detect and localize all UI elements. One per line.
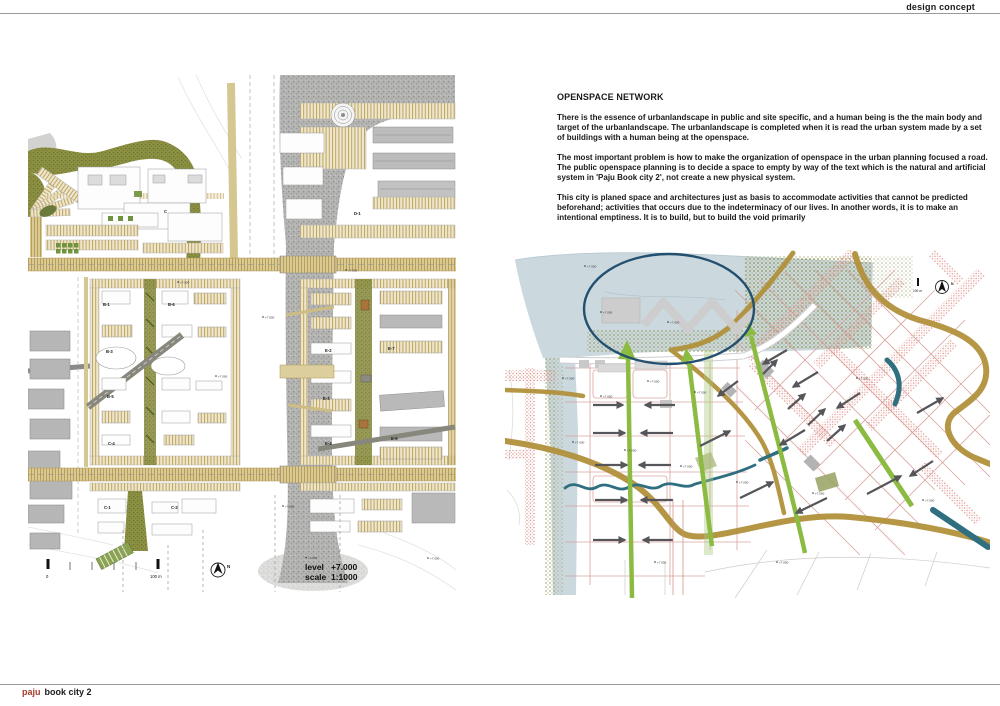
block-label: E-2 <box>325 348 332 353</box>
svg-text:+7.000: +7.000 <box>779 561 789 565</box>
svg-text:+7.000: +7.000 <box>815 492 825 496</box>
footer-rest: book city 2 <box>45 687 92 697</box>
top-rule <box>0 13 1000 14</box>
svg-text:+7.000: +7.000 <box>603 395 613 399</box>
diagram-contours <box>507 370 520 525</box>
north-label: N <box>951 282 954 286</box>
section-heading: OPENSPACE NETWORK <box>557 92 990 102</box>
svg-text:+7.000: +7.000 <box>859 377 869 381</box>
block-label: E-3 <box>323 396 330 401</box>
north-access-road <box>231 83 234 259</box>
north-arrow: N <box>211 563 230 578</box>
west-slab-buildings <box>28 277 90 549</box>
spot-elevation: +7.000 <box>430 557 440 561</box>
svg-text:+7.000: +7.000 <box>180 281 190 285</box>
lower-red-roads <box>673 500 683 595</box>
block-label: B-5 <box>107 394 114 399</box>
svg-text:+7.000: +7.000 <box>697 391 707 395</box>
block-label: C-1 <box>104 505 111 510</box>
svg-text:+7.000: +7.000 <box>218 375 228 379</box>
block-label: C-2 <box>171 505 178 510</box>
footer-title: pajubook city 2 <box>22 687 92 697</box>
svg-text:+7.000: +7.000 <box>670 321 680 325</box>
main-road-upper <box>28 256 456 273</box>
block-cluster-e-lower <box>300 483 455 532</box>
north-label: N <box>227 564 230 569</box>
openspace-diagram: N 100 m +7.000 +7.000 +7.000 +7.000 +7.0… <box>505 250 990 600</box>
block-cluster-b <box>88 279 240 465</box>
block-label: E-4 <box>325 441 332 446</box>
setback-lines <box>250 75 274 259</box>
svg-text:+7.000: +7.000 <box>285 505 295 509</box>
svg-text:+7.000: +7.000 <box>657 561 667 565</box>
block-label: C <box>164 209 167 214</box>
svg-text:+7.000: +7.000 <box>348 269 358 273</box>
svg-text:+7.000: +7.000 <box>575 441 585 445</box>
svg-text:+7.000: +7.000 <box>265 316 275 320</box>
scale-value: 1:1000 <box>331 572 358 582</box>
lot-lines <box>625 550 990 598</box>
level-value: +7.000 <box>331 562 358 572</box>
svg-text:+7.000: +7.000 <box>565 377 575 381</box>
page-title: design concept <box>906 2 975 12</box>
mid-bridge <box>280 365 334 378</box>
scale-bar-zero: 0 <box>46 574 49 579</box>
paragraph-2: The most important problem is how to mak… <box>557 153 990 183</box>
svg-text:+7.000: +7.000 <box>650 380 660 384</box>
block-label: E-6 <box>391 436 398 441</box>
paragraph-1: There is the essence of urbanlandscape i… <box>557 113 990 143</box>
block-label: E-7 <box>388 346 395 351</box>
openspace-text-panel: OPENSPACE NETWORK There is the essence o… <box>557 92 990 233</box>
block-label: B-3 <box>106 349 113 354</box>
svg-text:+7.000: +7.000 <box>683 465 693 469</box>
block-cluster-c-lower <box>90 483 240 570</box>
footer-brand: paju <box>22 687 41 697</box>
svg-text:+7.000: +7.000 <box>925 499 935 503</box>
block-label: B-6 <box>168 302 175 307</box>
svg-text:+7.000: +7.000 <box>587 265 597 269</box>
svg-text:+7.000: +7.000 <box>739 481 749 485</box>
design-sheet-page: design concept pajubook city 2 OPENSPACE… <box>0 0 1000 706</box>
level-label: level <box>305 562 324 572</box>
svg-text:+7.000: +7.000 <box>603 311 613 315</box>
bottom-rule <box>0 684 1000 685</box>
paragraph-3: This city is planed space and architectu… <box>557 193 990 223</box>
diagram-scale-text: 100 m <box>913 289 922 293</box>
masterplan-map: C D-1 <box>28 75 456 592</box>
spot-elevation: +7.000 <box>308 556 318 560</box>
block-label: B-1 <box>103 302 110 307</box>
svg-text:+7.000: +7.000 <box>627 449 637 453</box>
main-road-lower <box>28 466 456 483</box>
scale-bar-end: 100 m <box>150 574 162 579</box>
block-label: D-1 <box>354 211 361 216</box>
block-label: C-4 <box>108 441 115 446</box>
scale-label: scale <box>305 572 327 582</box>
